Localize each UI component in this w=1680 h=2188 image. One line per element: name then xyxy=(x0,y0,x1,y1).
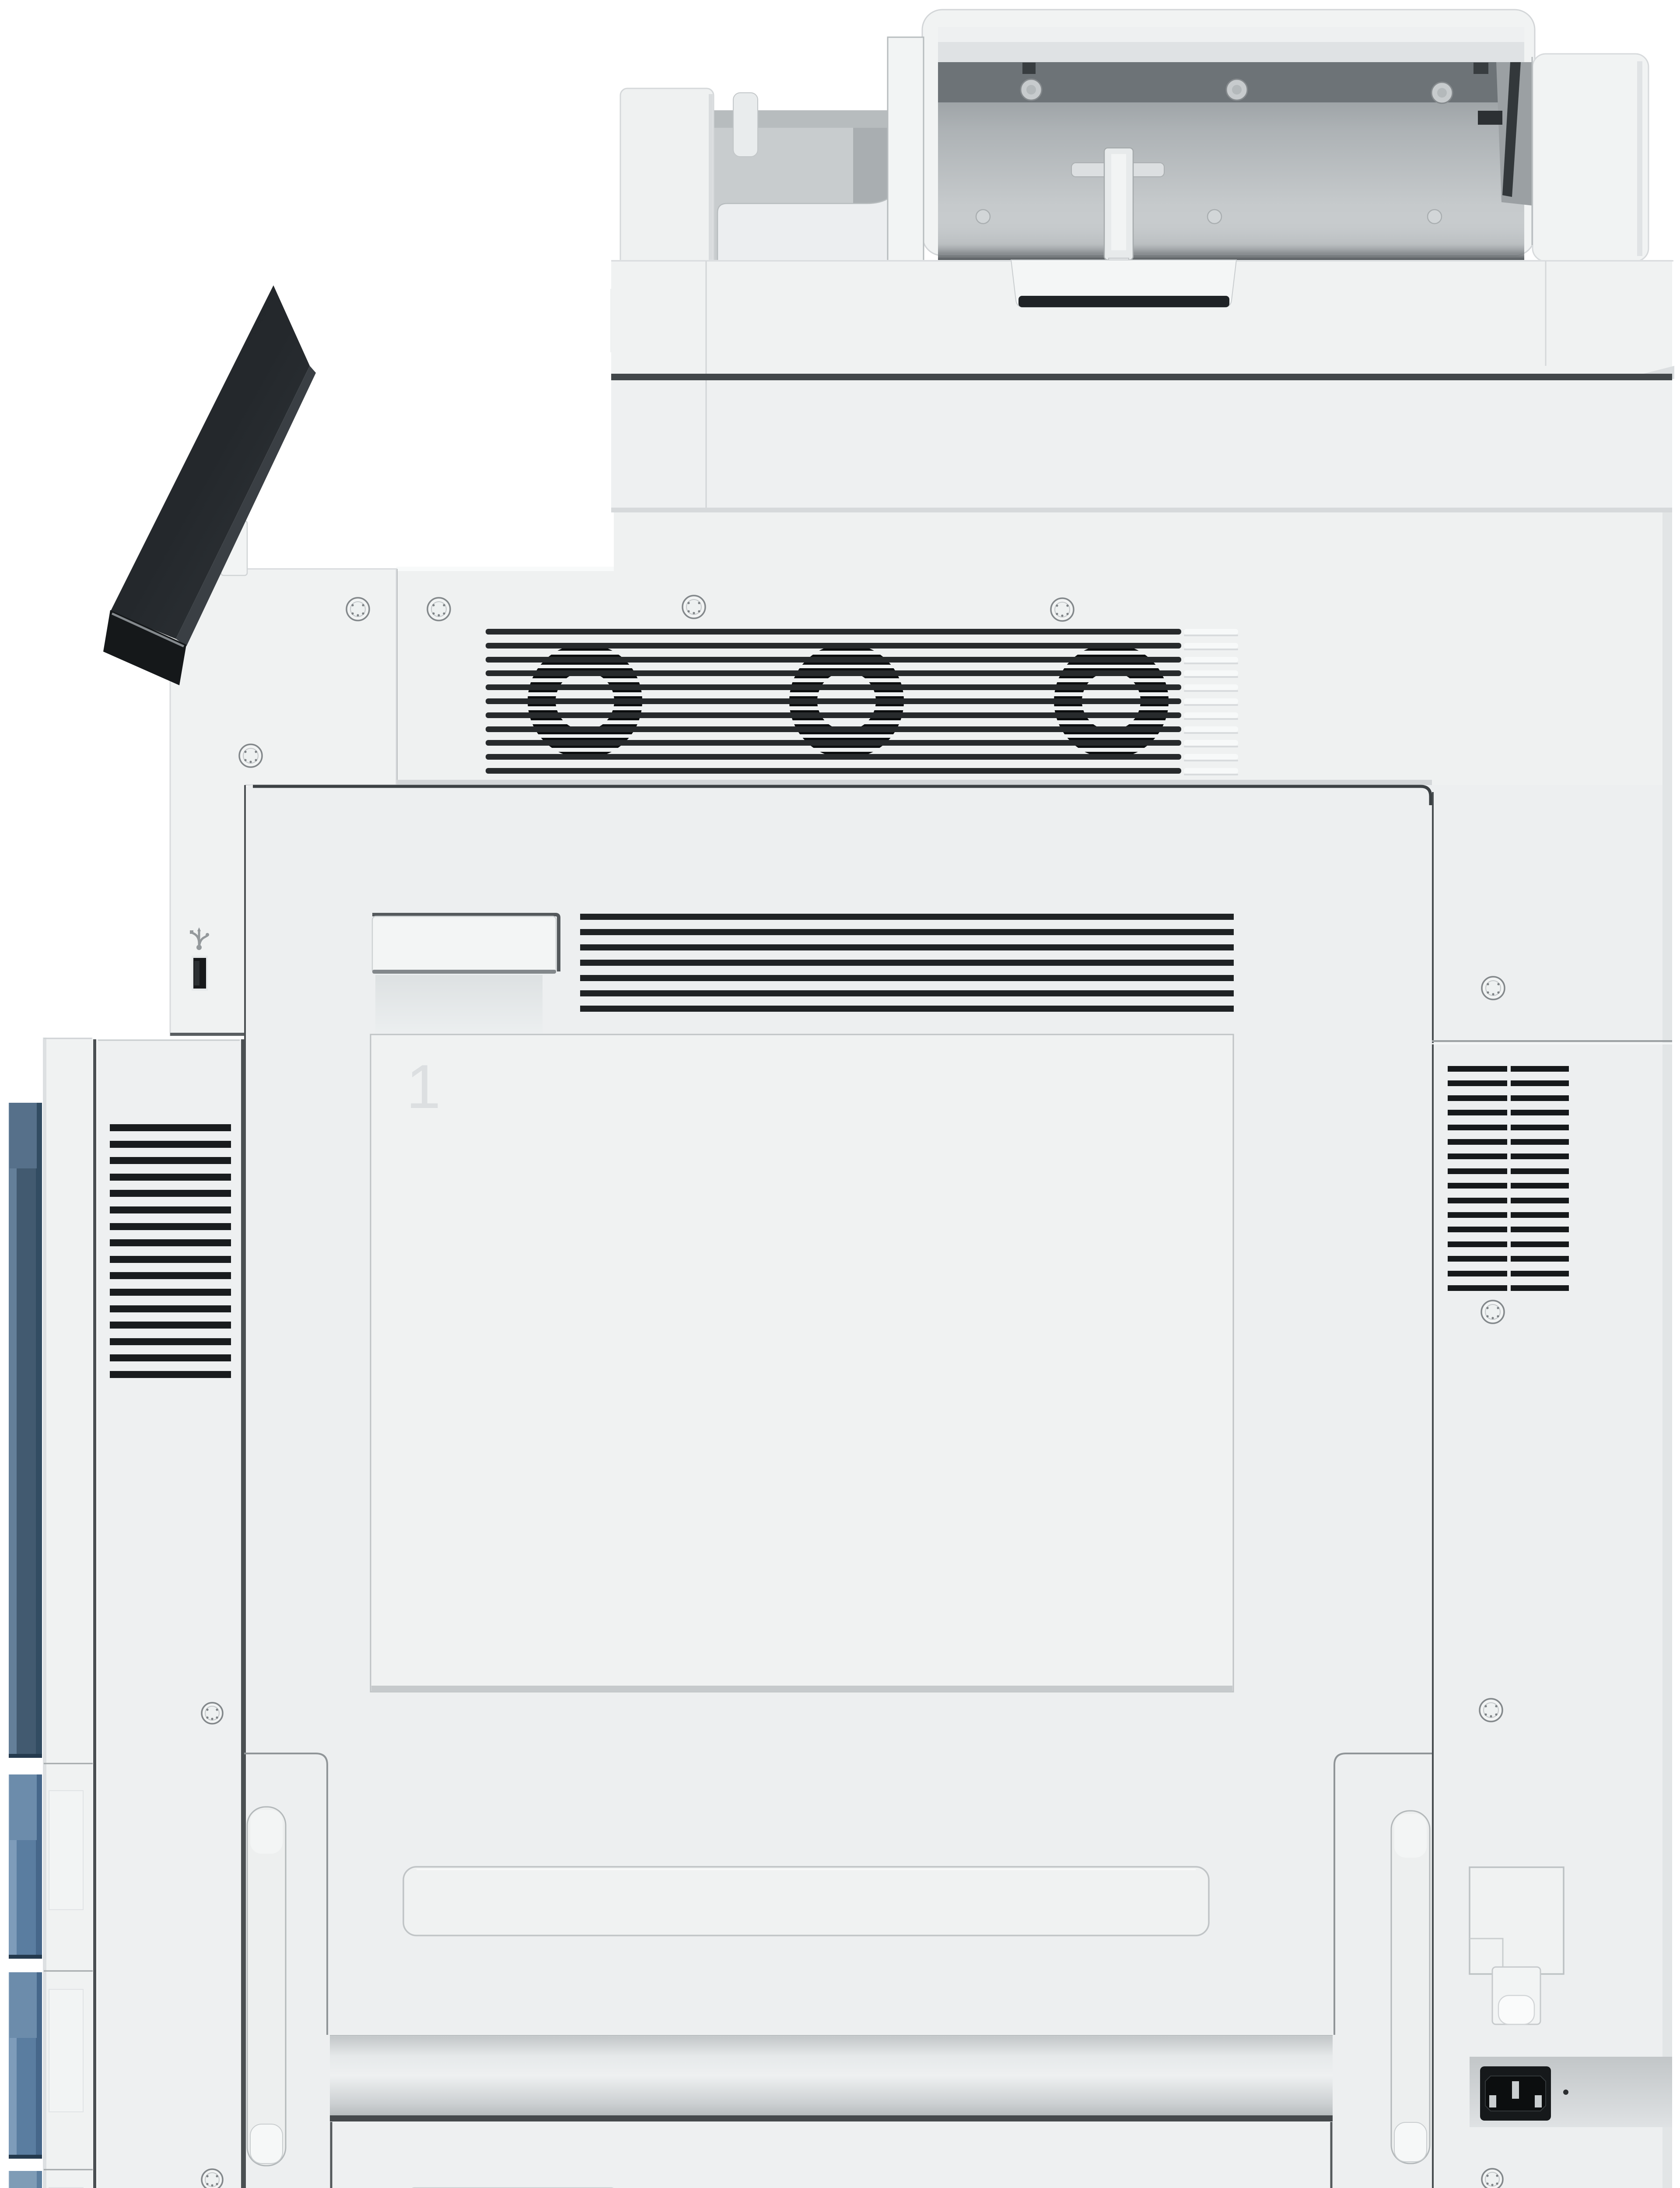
svg-text:1: 1 xyxy=(406,1052,441,1122)
